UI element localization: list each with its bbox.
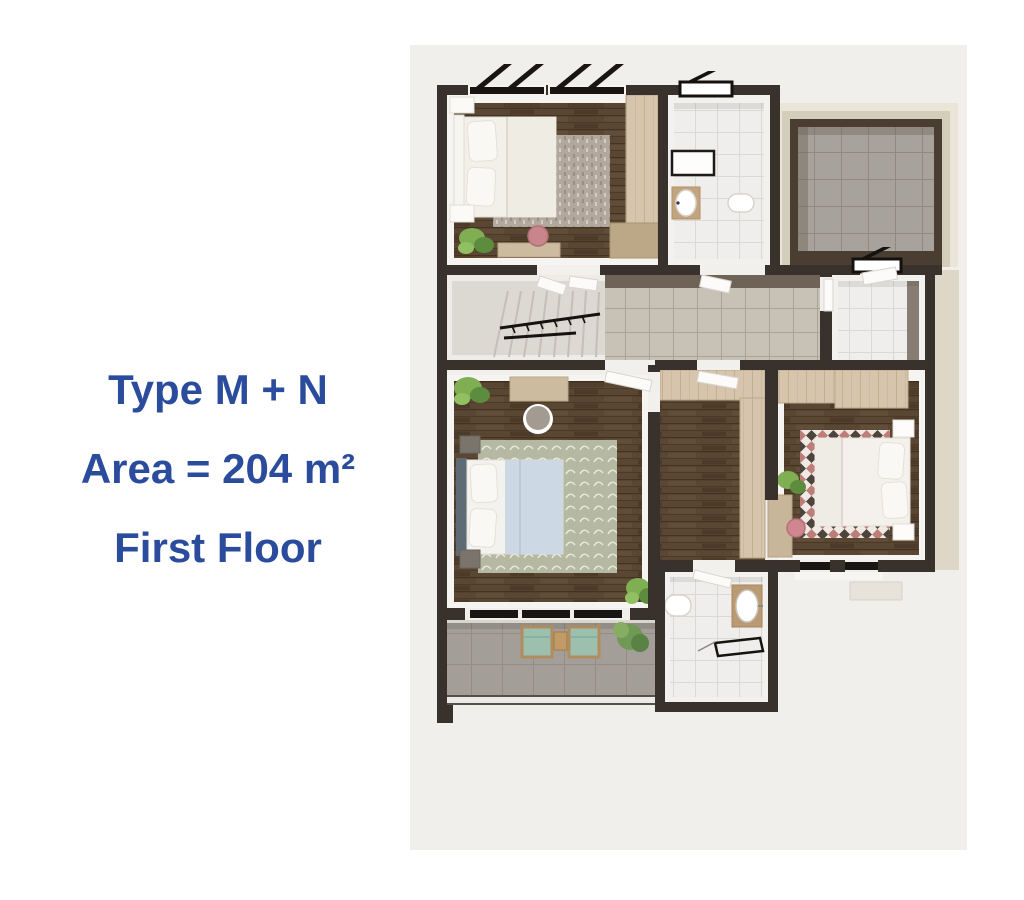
laundry-room	[838, 281, 919, 360]
ensuite-bathroom	[665, 577, 763, 697]
master-dresser	[510, 377, 568, 401]
floor-plan-drawing	[410, 45, 967, 850]
bathroom2-toilet	[665, 595, 691, 616]
bathroom1-vanity-sink	[672, 187, 700, 219]
bathroom1-mirror	[672, 151, 714, 175]
bedroom2-nightstand-bottom	[893, 524, 914, 540]
balcony-side-table	[554, 632, 567, 650]
bathroom1-floor	[674, 103, 764, 259]
bedroom1-nightstand-top	[450, 97, 474, 113]
bedroom2-bed	[815, 438, 910, 526]
master-bedroom	[454, 377, 657, 604]
bedroom2-closet	[778, 370, 908, 408]
bedroom2-pouf	[787, 519, 805, 537]
bedroom1-pouf	[528, 226, 548, 246]
laundry-door	[824, 279, 833, 311]
bedroom-2	[768, 370, 919, 557]
exterior-ledge	[935, 270, 959, 570]
bathroom1-toilet	[728, 194, 754, 212]
caption-line-area: Area = 204 m²	[40, 429, 396, 508]
laundry-floor	[838, 281, 919, 360]
bathroom-1	[672, 103, 764, 259]
lounge-chair-right	[569, 627, 599, 657]
bathroom2-vanity-sink	[732, 585, 763, 627]
master-nightstand-bottom	[460, 550, 480, 568]
bedroom2-nightstand-top	[893, 420, 914, 437]
caption-line-type: Type M + N	[40, 350, 396, 429]
bedroom1-bed	[454, 115, 556, 219]
bathroom1-window	[680, 71, 732, 96]
bedroom1-window-left	[468, 64, 546, 95]
terrace-tiles	[798, 127, 934, 251]
lounge-chair-left	[522, 627, 552, 657]
caption: Type M + N Area = 204 m² First Floor	[40, 350, 396, 587]
balcony-railing	[447, 695, 655, 705]
stair-hall	[452, 281, 605, 357]
caption-line-floor: First Floor	[40, 508, 396, 587]
floor-plan	[410, 45, 967, 850]
terrace	[774, 103, 958, 267]
bedroom1-window-right	[548, 64, 626, 95]
master-bed	[456, 458, 563, 556]
page: Type M + N Area = 204 m² First Floor	[0, 0, 1024, 900]
master-ottoman	[523, 404, 553, 434]
hallway-floor	[605, 288, 820, 360]
balcony	[447, 622, 655, 705]
dressing-corridor	[660, 370, 765, 560]
master-nightstand-top	[460, 436, 480, 453]
bedroom1-sideboard	[498, 243, 560, 257]
bedroom-1	[450, 95, 658, 258]
bedroom1-nightstand-bottom	[450, 205, 474, 222]
master-balcony-sliding-door	[465, 608, 630, 620]
laundry-counter	[907, 281, 919, 360]
